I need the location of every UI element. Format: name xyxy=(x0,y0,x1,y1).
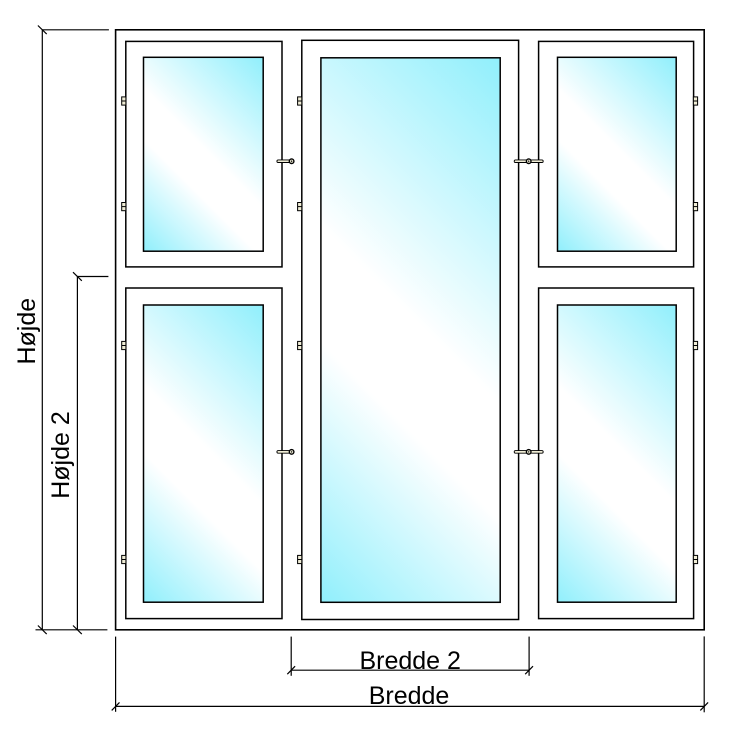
svg-text:Højde 2: Højde 2 xyxy=(47,411,75,499)
svg-text:Bredde 2: Bredde 2 xyxy=(359,647,460,675)
svg-text:Bredde: Bredde xyxy=(369,682,450,710)
svg-text:Højde: Højde xyxy=(13,298,41,365)
